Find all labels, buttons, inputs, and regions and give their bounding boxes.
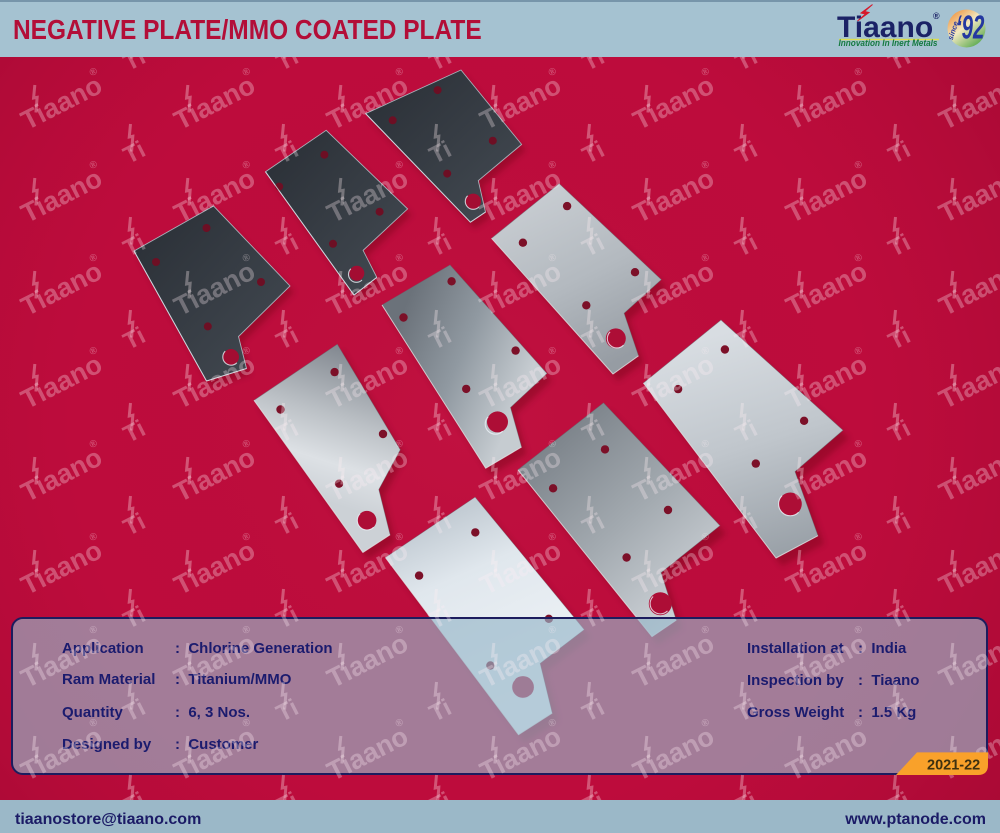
svg-text:‘92: ‘92 (956, 8, 984, 45)
svg-text:Innovation In Inert Metals: Innovation In Inert Metals (839, 38, 938, 48)
svg-text:2021-22: 2021-22 (927, 758, 980, 774)
svg-text:®: ® (933, 11, 940, 21)
